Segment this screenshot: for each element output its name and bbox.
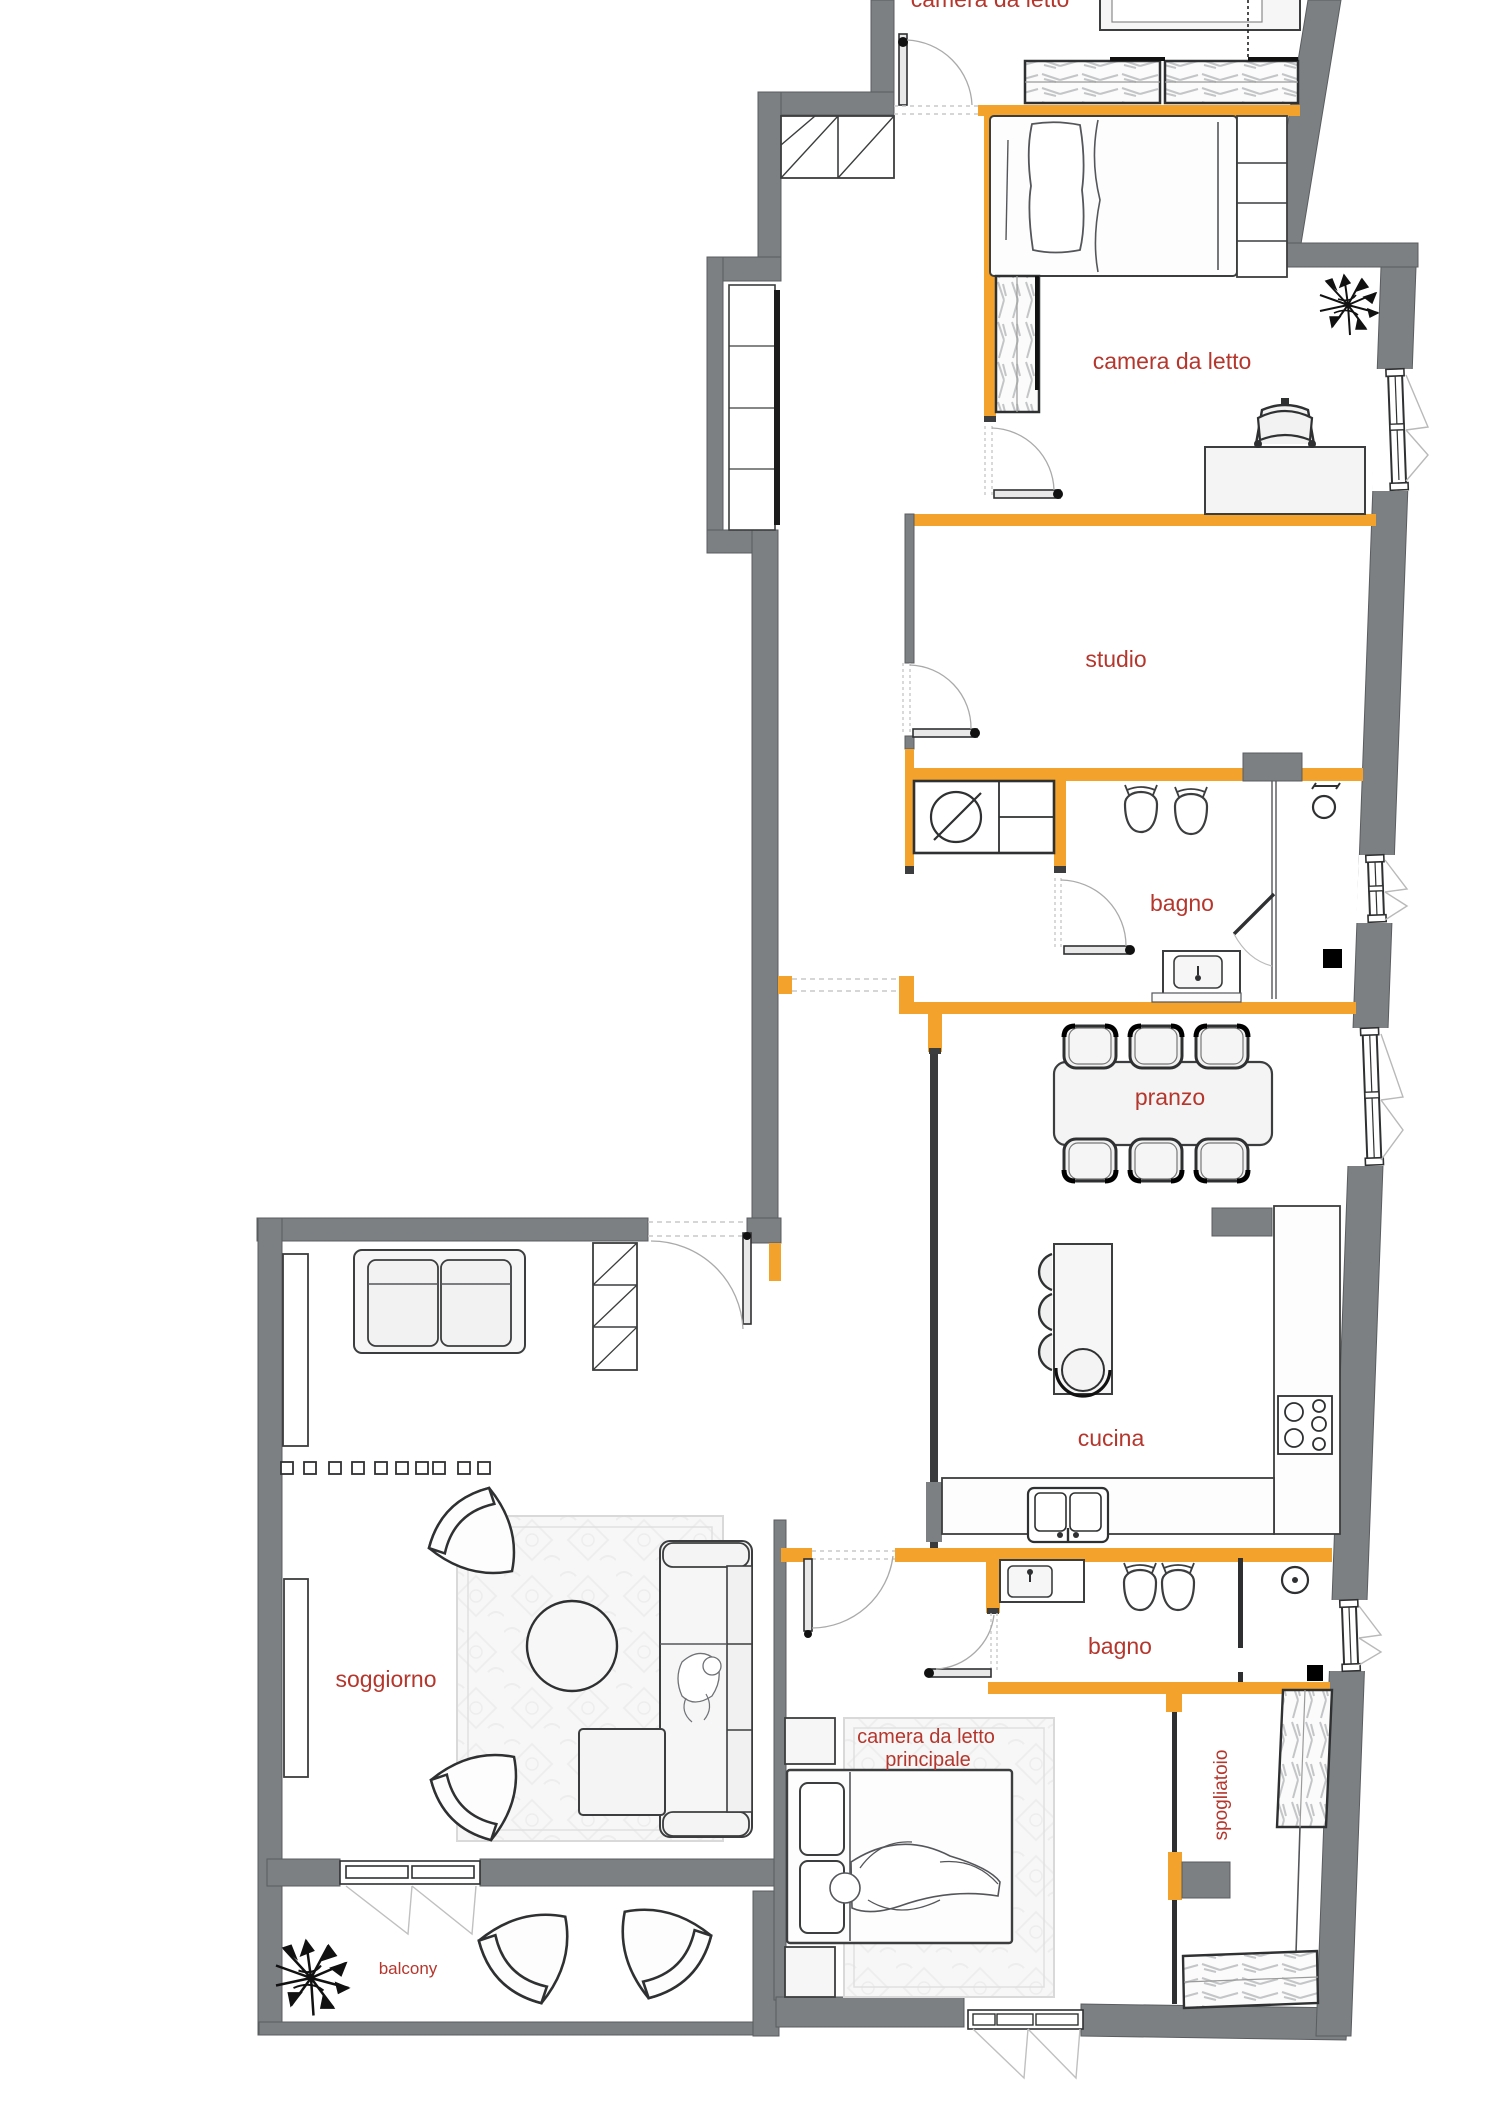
svg-text:studio: studio	[1085, 646, 1146, 672]
svg-text:bagno: bagno	[1088, 1633, 1152, 1659]
svg-text:soggiorno: soggiorno	[335, 1666, 436, 1692]
svg-text:balcony: balcony	[379, 1959, 438, 1978]
svg-text:camera da letto: camera da letto	[1093, 348, 1252, 374]
svg-text:camera da letto: camera da letto	[857, 1726, 995, 1748]
svg-text:principale: principale	[885, 1749, 971, 1771]
svg-text:camera da letto: camera da letto	[911, 0, 1070, 12]
svg-text:bagno: bagno	[1150, 890, 1214, 916]
svg-text:pranzo: pranzo	[1135, 1084, 1205, 1110]
svg-text:spogliatoio: spogliatoio	[1211, 1750, 1232, 1841]
svg-text:cucina: cucina	[1078, 1425, 1145, 1451]
